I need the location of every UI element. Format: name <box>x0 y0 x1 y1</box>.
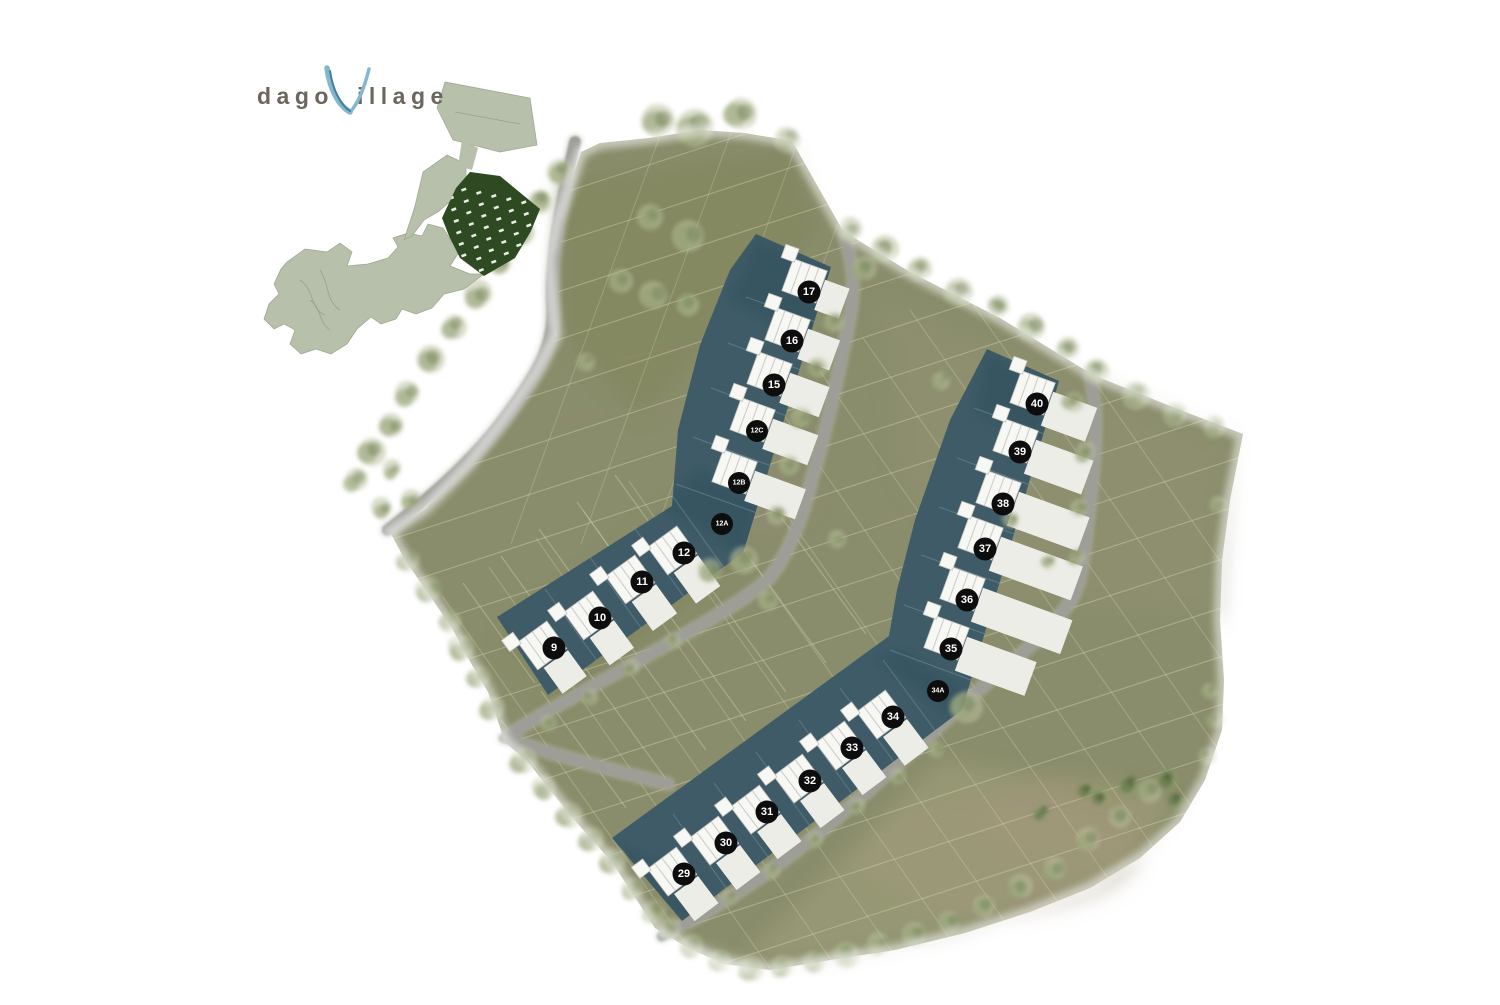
svg-text:12C: 12C <box>751 428 764 435</box>
svg-text:36: 36 <box>961 594 973 606</box>
svg-text:39: 39 <box>1014 446 1026 458</box>
svg-text:dago: dago <box>257 83 334 109</box>
svg-text:9: 9 <box>551 642 557 654</box>
svg-text:34A: 34A <box>932 688 945 695</box>
svg-text:38: 38 <box>997 498 1009 510</box>
svg-text:15: 15 <box>768 379 780 391</box>
svg-text:12A: 12A <box>716 521 729 528</box>
svg-text:29: 29 <box>678 868 690 880</box>
svg-text:33: 33 <box>846 742 858 754</box>
svg-text:37: 37 <box>979 543 991 555</box>
svg-text:30: 30 <box>720 837 732 849</box>
svg-text:40: 40 <box>1031 398 1043 410</box>
svg-text:32: 32 <box>804 775 816 787</box>
svg-text:12: 12 <box>678 547 690 559</box>
svg-text:11: 11 <box>636 576 648 588</box>
svg-text:17: 17 <box>803 286 815 298</box>
svg-text:12B: 12B <box>733 480 746 487</box>
svg-text:illage: illage <box>357 83 449 109</box>
svg-text:31: 31 <box>761 806 773 818</box>
svg-text:10: 10 <box>594 612 606 624</box>
svg-text:35: 35 <box>945 643 957 655</box>
svg-text:34: 34 <box>887 711 900 723</box>
svg-text:16: 16 <box>786 335 798 347</box>
